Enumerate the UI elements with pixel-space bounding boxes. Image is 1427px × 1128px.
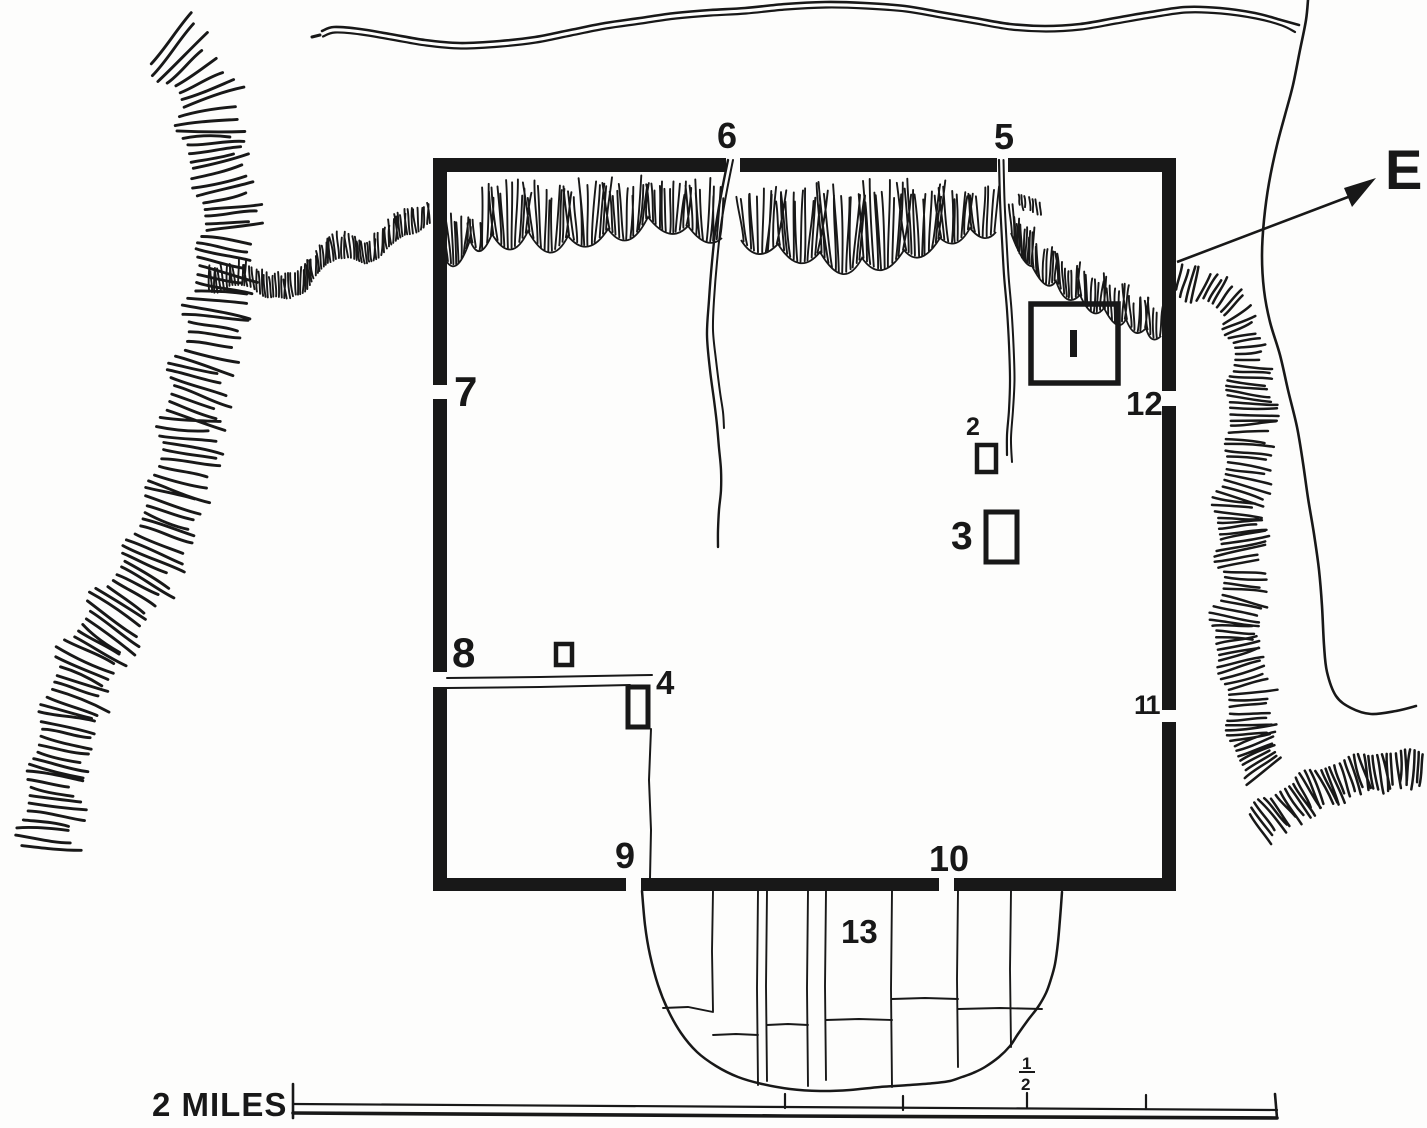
svg-text:9: 9 — [615, 835, 635, 876]
svg-text:7: 7 — [454, 368, 477, 415]
svg-text:4: 4 — [656, 664, 675, 701]
svg-text:10: 10 — [929, 838, 969, 879]
svg-text:8: 8 — [452, 629, 475, 676]
svg-text:2 MILES: 2 MILES — [152, 1086, 287, 1123]
svg-text:11: 11 — [1134, 690, 1161, 720]
svg-text:13: 13 — [841, 913, 878, 950]
svg-text:2: 2 — [1021, 1075, 1030, 1094]
svg-text:6: 6 — [717, 115, 737, 156]
svg-text:5: 5 — [994, 116, 1014, 157]
svg-text:2: 2 — [966, 413, 980, 441]
svg-text:1: 1 — [1022, 1054, 1031, 1073]
svg-text:E: E — [1385, 138, 1422, 201]
svg-text:3: 3 — [951, 515, 973, 558]
svg-text:12: 12 — [1126, 385, 1163, 422]
